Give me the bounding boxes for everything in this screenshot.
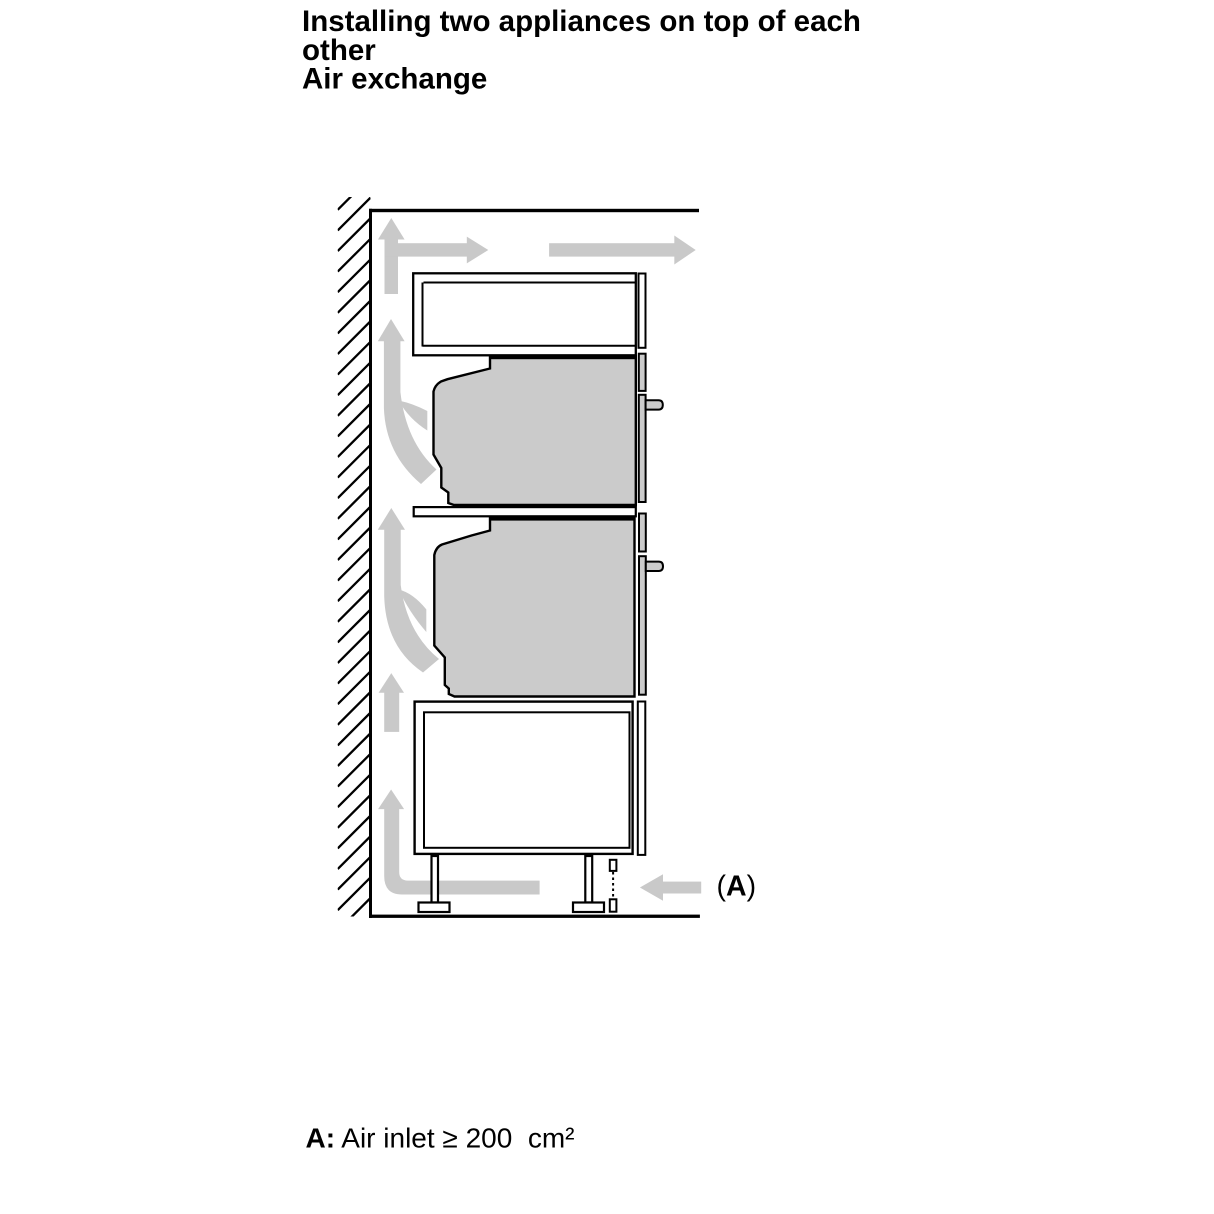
svg-text:Installing two appliances on t: Installing two appliances on top of each xyxy=(302,5,861,38)
svg-text:(A): (A) xyxy=(717,871,757,903)
svg-text:Air exchange: Air exchange xyxy=(302,63,487,96)
svg-text:A: Air inlet ≥ 200 cm²: A: Air inlet ≥ 200 cm² xyxy=(306,1122,575,1153)
